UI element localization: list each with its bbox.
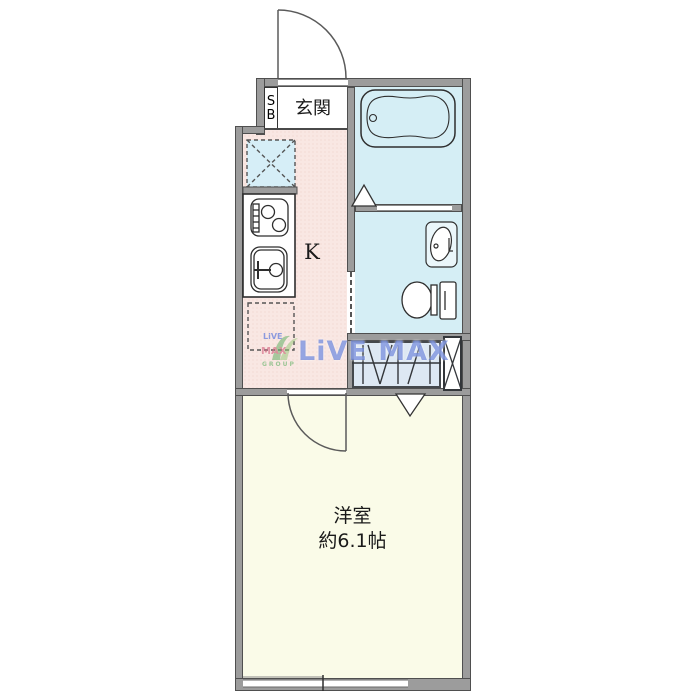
- livemax-logo-bottom: GROUP: [262, 361, 296, 368]
- entrance-label: 玄関: [278, 94, 348, 120]
- washing-machine-space: [247, 140, 295, 187]
- sliding-window: [243, 675, 408, 691]
- livemax-watermark: LiVE MAX GROUP LiVE MAX: [260, 330, 445, 372]
- bathtub-icon: [361, 90, 455, 147]
- kitchen-stub-wall: [243, 187, 297, 194]
- livemax-logo-mid: MAX: [261, 346, 286, 357]
- toilet-icon: [402, 282, 456, 319]
- entrance-door-arc: [278, 10, 346, 78]
- western-room-label: 洋室 約6.1帖: [243, 504, 462, 554]
- washbasin-icon: [426, 222, 457, 267]
- floorplan-canvas: S B: [0, 0, 700, 700]
- closet-door-triangle: [396, 394, 425, 416]
- room-door-arc: [288, 393, 346, 451]
- livemax-watermark-text: LiVE MAX: [298, 336, 450, 367]
- western-room-size: 約6.1帖: [243, 529, 462, 554]
- kitchen-label: K: [299, 240, 325, 264]
- bath-door-triangle: [352, 185, 376, 206]
- western-room-name: 洋室: [243, 504, 462, 529]
- livemax-logo-top: LiVE: [263, 332, 283, 341]
- kitchen-counter: [243, 194, 295, 297]
